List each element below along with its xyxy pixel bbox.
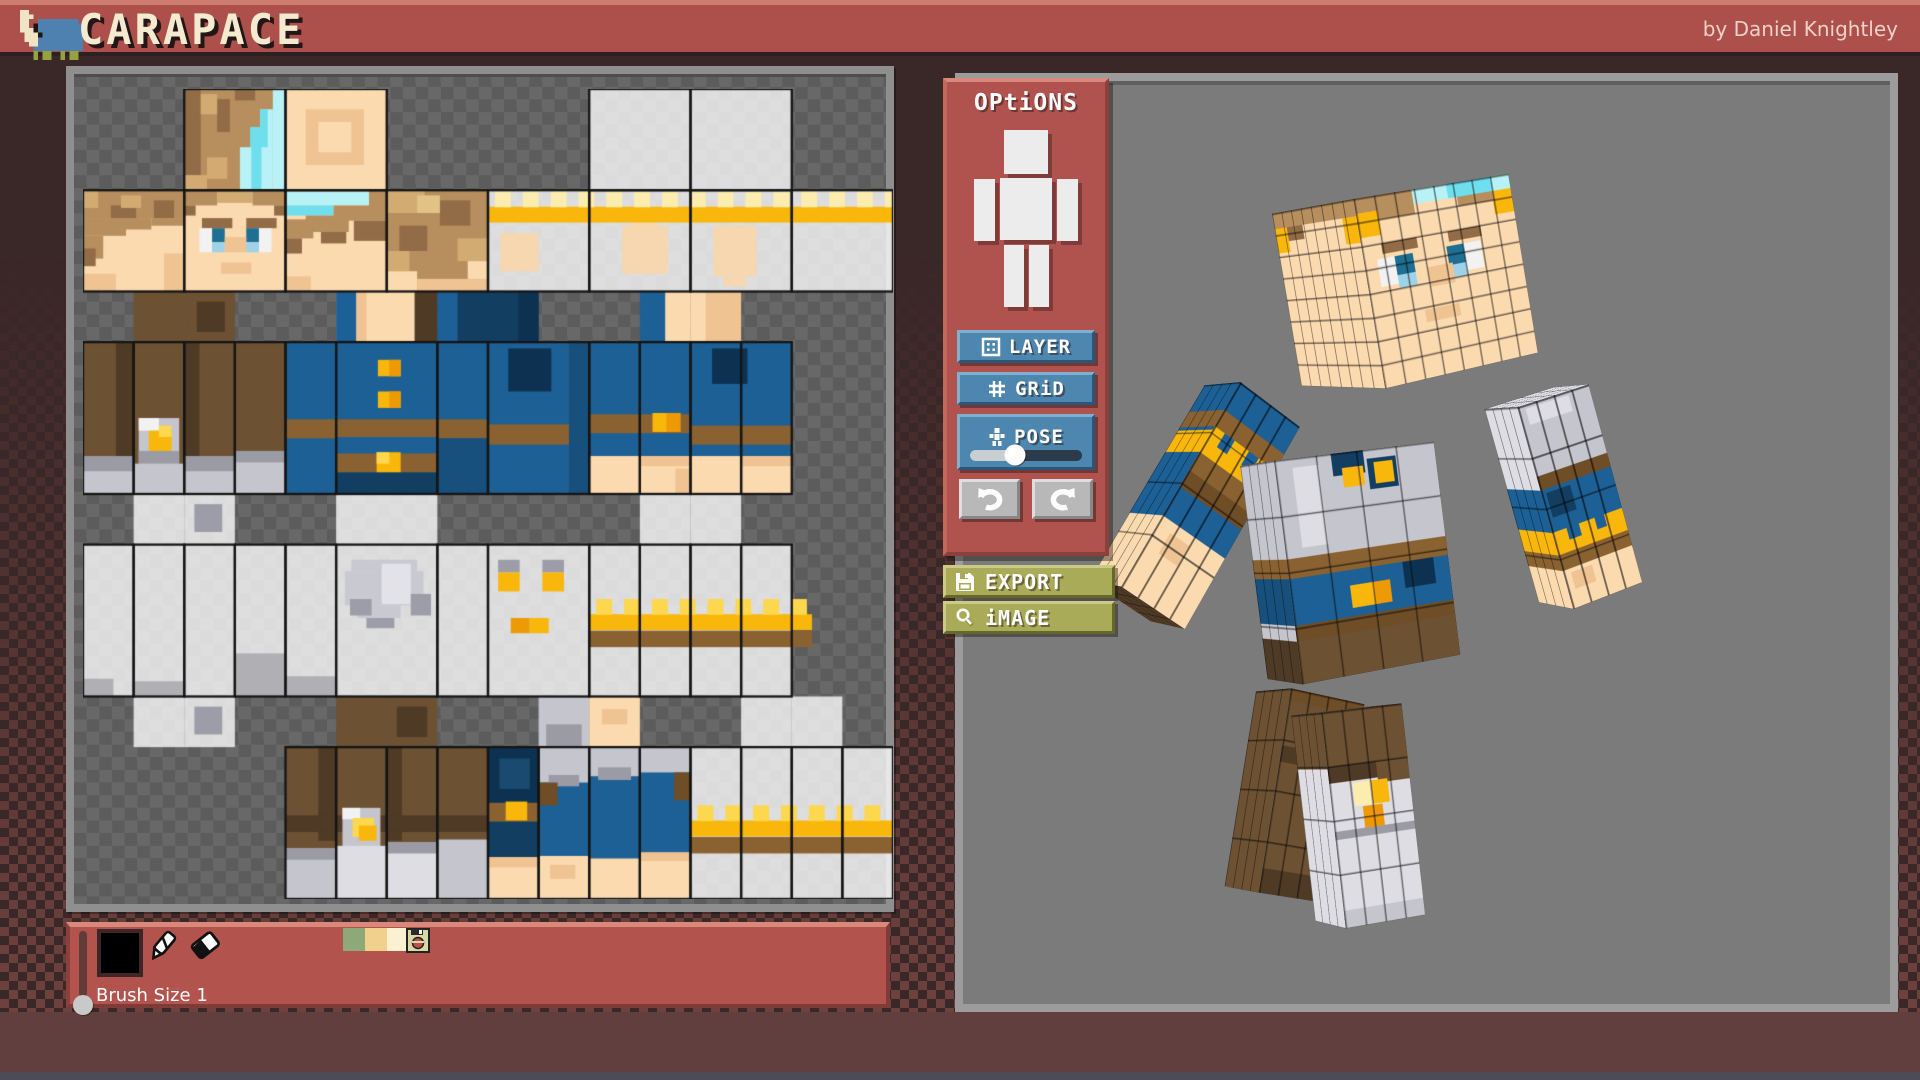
palette-swatch-0[interactable]	[343, 928, 365, 951]
mannequin-head[interactable]	[1004, 130, 1048, 174]
brush-size-label: Brush Size	[96, 985, 191, 1006]
skin-texture-canvas[interactable]	[83, 89, 893, 899]
image-button[interactable]: iMAGE	[943, 601, 1115, 634]
grid-button-label: GRiD	[1015, 378, 1065, 400]
palette-swatch-1[interactable]	[365, 928, 387, 951]
pen-icon	[144, 927, 180, 967]
model-part-head[interactable]	[1315, 193, 1490, 371]
pose-button[interactable]: POSE	[957, 414, 1095, 470]
brush-size-value: 1	[196, 985, 207, 1006]
author-credit: by Daniel Knightley	[1703, 17, 1898, 41]
undo-button[interactable]	[959, 479, 1020, 519]
mannequin-torso[interactable]	[1000, 178, 1052, 240]
bottom-toolbar: Brush Size 1	[66, 922, 890, 1008]
save-palette-button[interactable]	[406, 928, 430, 957]
pose-button-label: POSE	[1014, 426, 1064, 448]
grid-button[interactable]: GRiD	[957, 372, 1095, 405]
current-color-swatch[interactable]	[97, 929, 143, 977]
pen-tool[interactable]	[144, 927, 180, 971]
app-title: CARAPACE	[78, 5, 304, 54]
model-part-arm-right[interactable]	[1155, 386, 1235, 621]
brush-size-knob[interactable]	[73, 995, 93, 1015]
export-button[interactable]: EXPORT	[943, 565, 1115, 598]
model-face-torso-front	[1274, 442, 1460, 685]
palette-floppy-icon	[406, 928, 430, 953]
app-window: CARAPACE by Daniel Knightley OPtiONS LAY…	[0, 0, 1920, 1080]
layer-button[interactable]: LAYER	[957, 330, 1095, 363]
eraser-tool[interactable]	[186, 927, 226, 969]
model-part-torso[interactable]	[1263, 453, 1438, 668]
model-part-leg-left[interactable]	[1315, 709, 1400, 919]
pose-icon	[988, 427, 1006, 447]
layer-button-label: LAYER	[1009, 336, 1071, 358]
model-face-head-front	[1353, 174, 1537, 389]
mannequin-right-leg[interactable]	[1029, 245, 1049, 307]
pose-slider-knob[interactable]	[1004, 445, 1025, 466]
export-button-label: EXPORT	[985, 570, 1063, 594]
redo-button[interactable]	[1032, 479, 1093, 519]
footer-strip	[0, 1072, 1920, 1080]
undo-arrow-icon	[973, 485, 1007, 513]
brush-size-slider[interactable]	[79, 931, 87, 997]
texture-editor-panel	[66, 66, 894, 912]
model-part-arm-left[interactable]	[1523, 393, 1603, 598]
options-panel: OPtiONS LAYER GRiD	[943, 78, 1109, 556]
floppy-icon	[954, 571, 976, 593]
layer-icon	[981, 337, 1001, 357]
mannequin-right-arm[interactable]	[1057, 179, 1078, 241]
magnifier-icon	[954, 607, 976, 629]
options-title: OPtiONS	[947, 90, 1105, 116]
image-button-label: iMAGE	[985, 606, 1050, 630]
header-bar: CARAPACE by Daniel Knightley	[0, 0, 1920, 56]
footer-band	[0, 1012, 1920, 1074]
body-part-selector[interactable]	[970, 130, 1082, 330]
pose-slider[interactable]	[970, 450, 1082, 461]
grid-icon	[987, 379, 1007, 399]
mannequin-left-leg[interactable]	[1004, 245, 1024, 307]
redo-arrow-icon	[1046, 485, 1080, 513]
eraser-icon	[186, 927, 226, 965]
mannequin-left-arm[interactable]	[974, 179, 995, 241]
brush-size-row: Brush Size 1	[96, 985, 208, 1006]
